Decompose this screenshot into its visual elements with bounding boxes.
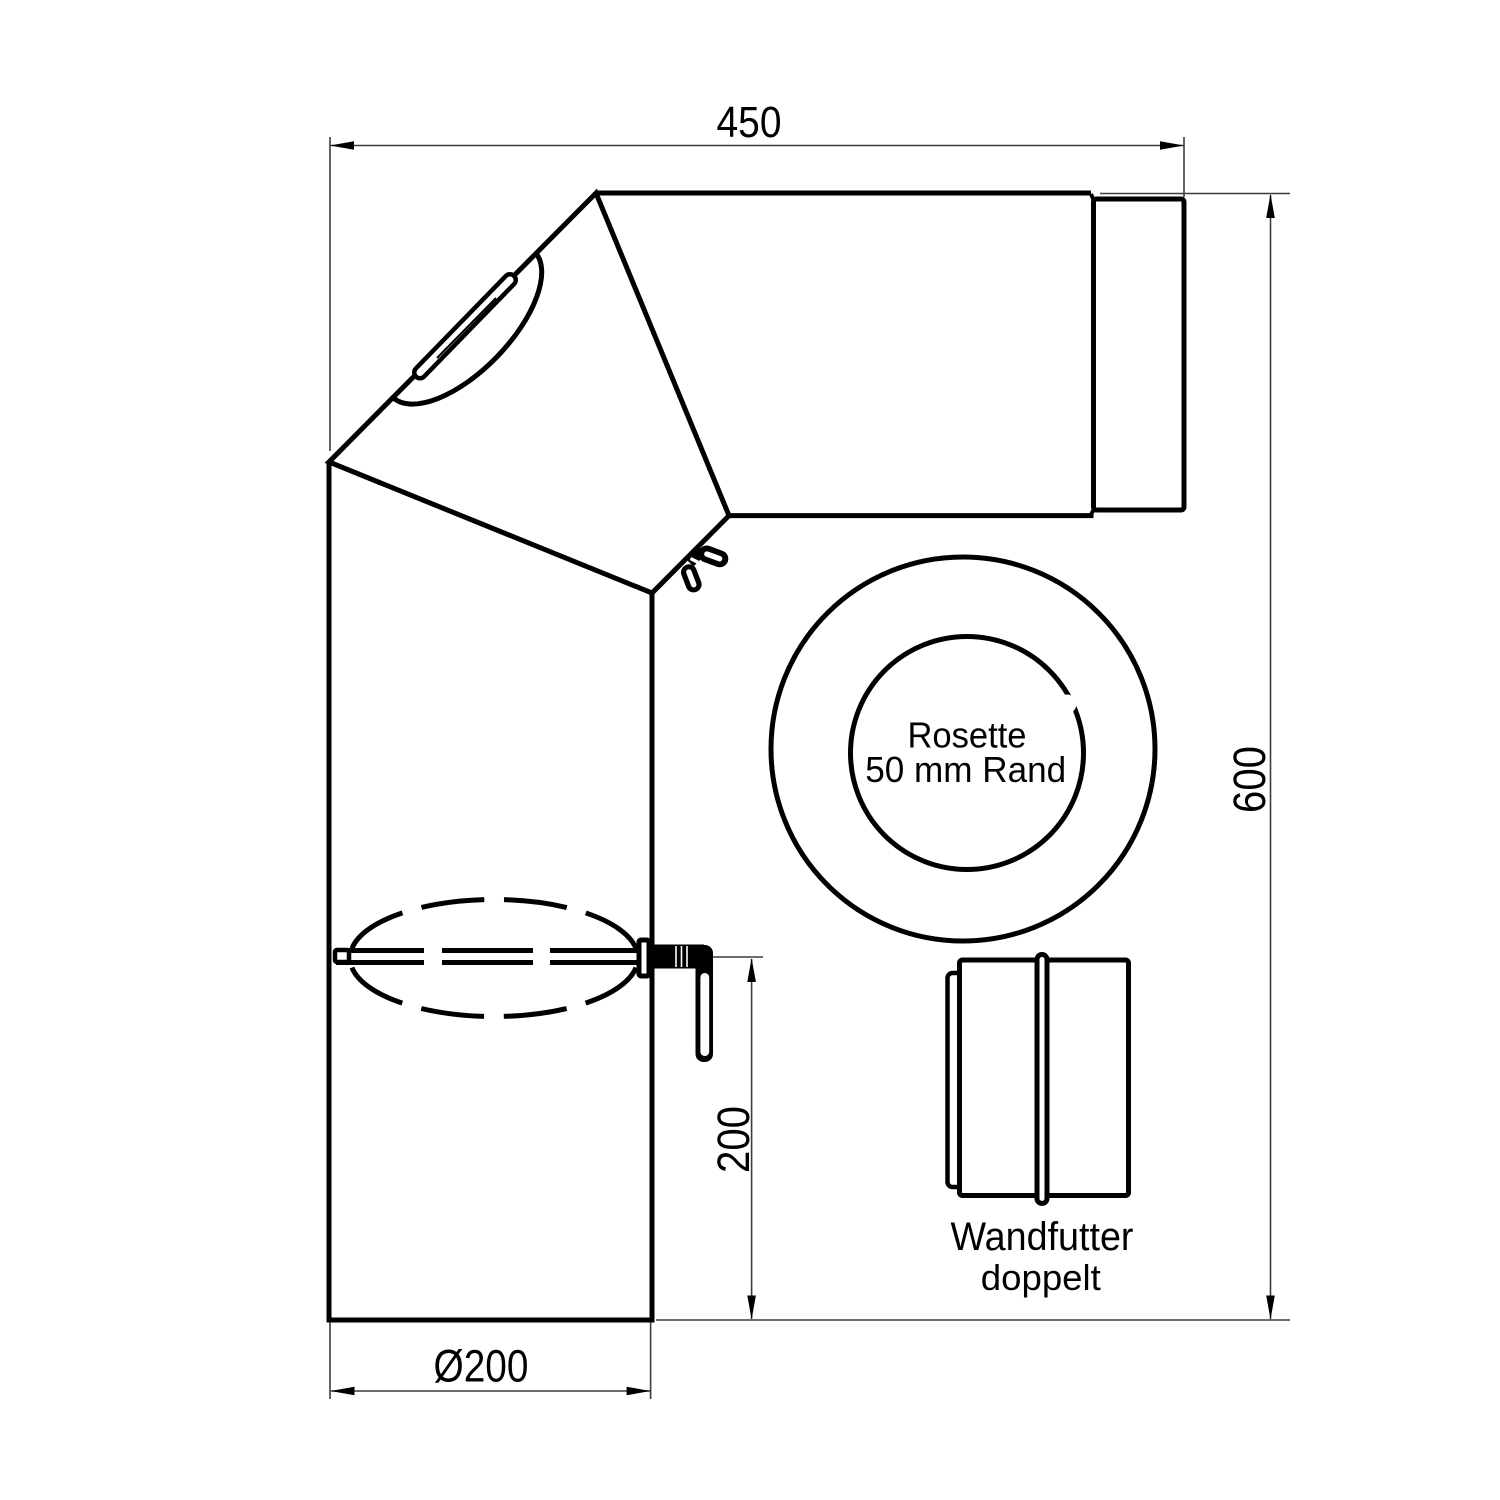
svg-text:50 mm Rand: 50 mm Rand — [865, 749, 1066, 790]
svg-text:doppelt: doppelt — [981, 1257, 1101, 1298]
svg-text:200: 200 — [708, 1106, 759, 1173]
svg-text:450: 450 — [717, 98, 782, 147]
svg-text:Ø200: Ø200 — [434, 1341, 529, 1392]
svg-text:600: 600 — [1224, 746, 1275, 813]
svg-text:Wandfutter: Wandfutter — [951, 1215, 1134, 1259]
